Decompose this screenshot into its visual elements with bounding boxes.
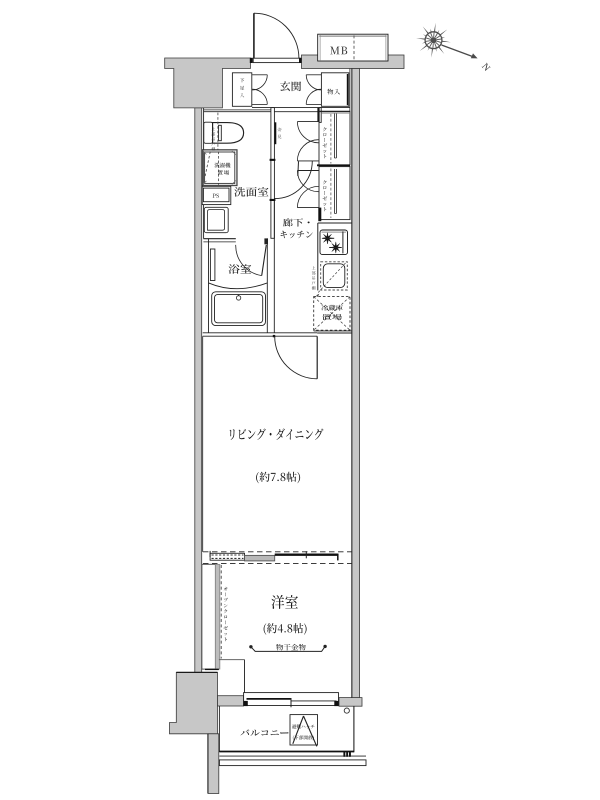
svg-text:N: N	[479, 62, 491, 74]
